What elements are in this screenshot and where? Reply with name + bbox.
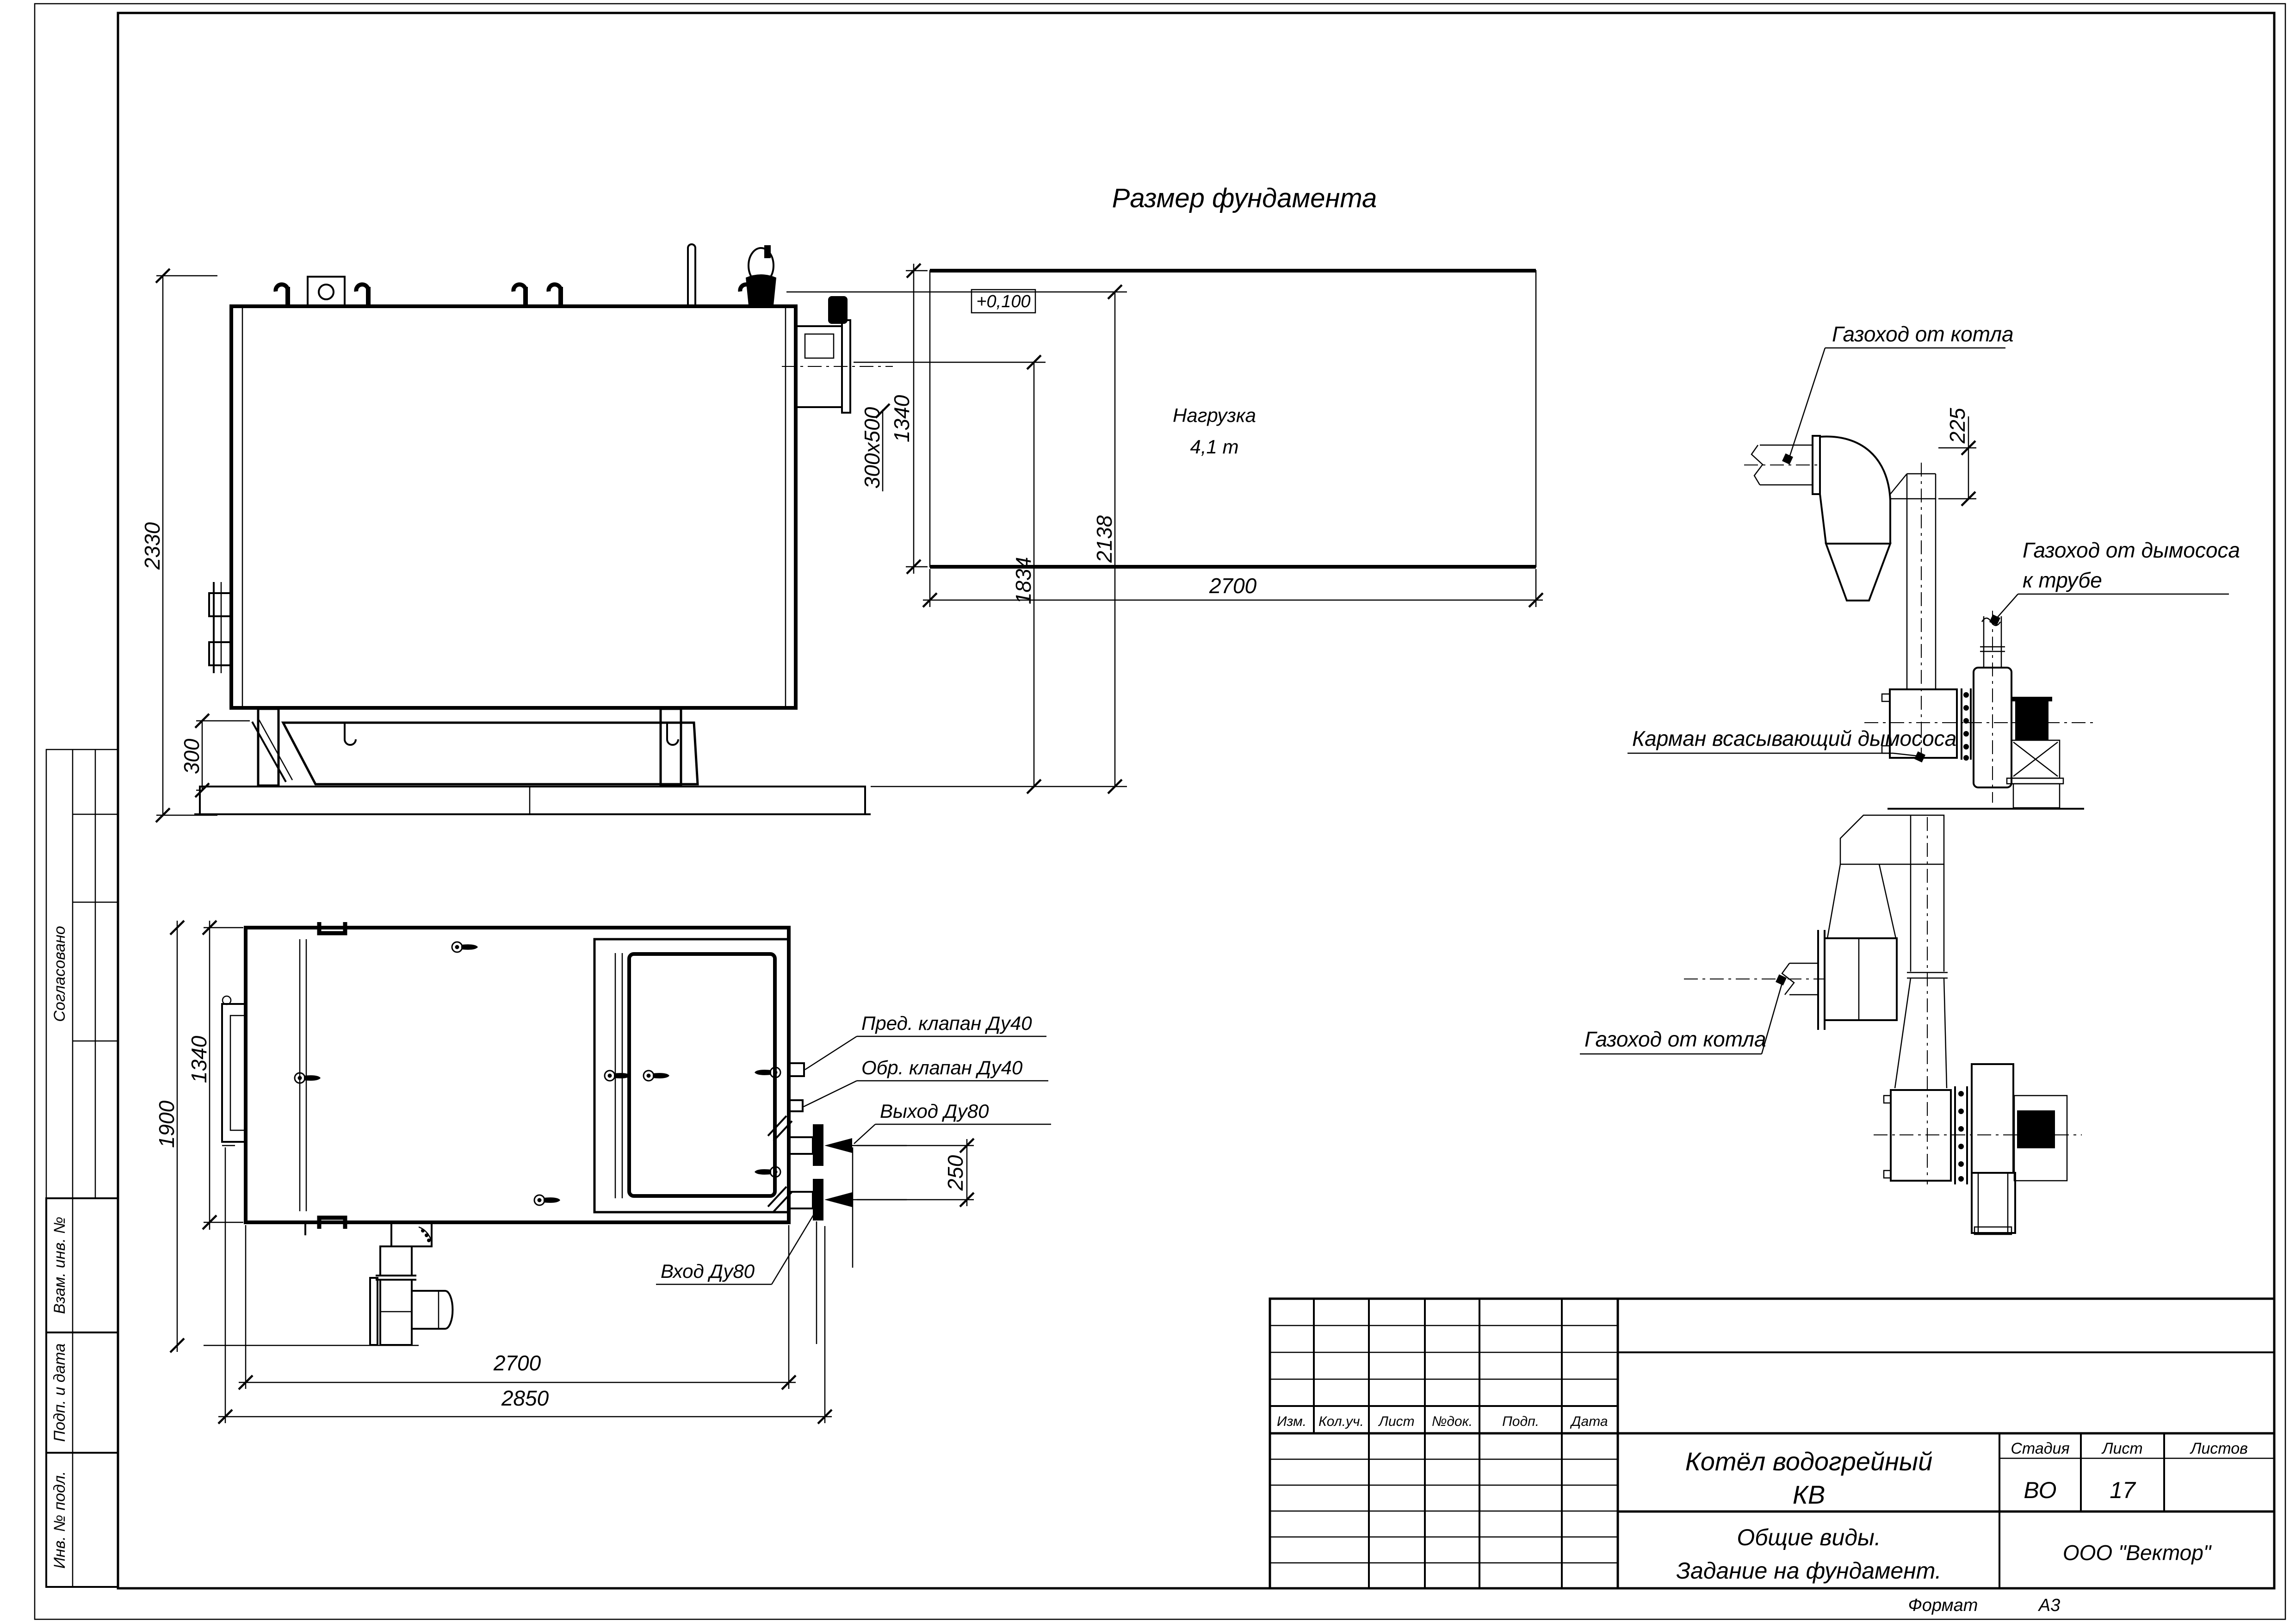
tb-sheet-label: Лист [2101,1440,2143,1457]
tb-koluch: Кол.уч. [1318,1414,1364,1429]
dim-plan-2700: 2700 [493,1351,541,1375]
drawing-sheet: Согласовано Взам. инв. № Подп. и дата Ин… [0,0,2296,1623]
label-duct-to-stack-2: к трубе [2023,568,2102,592]
duct-plan-view: Газоход от котла [1580,815,2082,1234]
label-duct-from-boiler: Газоход от котла [1832,322,2014,346]
dim-300x500: 300х500 [860,407,884,489]
sheet-footer: Формат А3 [1908,1596,2061,1615]
label-safety-valve: Пред. клапан Ду40 [861,1012,1032,1034]
format-label: Формат [1908,1596,1978,1615]
dim-250: 250 [943,1155,967,1191]
dim-2330: 2330 [140,522,164,570]
stamp-inv-orig-label: Инв. № подл. [51,1471,68,1569]
tb-sheets-label: Листов [2190,1440,2248,1457]
label-duct-plan-from-boiler: Газоход от котла [1584,1027,1766,1051]
foundation-plan: Размер фундамента +0,100 Нагрузка 4,1 т … [890,183,1543,607]
tb-stage-value: ВО [2024,1477,2056,1503]
label-outlet: Выход Ду80 [880,1100,989,1122]
foundation-load-1: Нагрузка [1173,404,1256,426]
boiler-side-view: 2330 300 300х500 1834 2138 [140,244,1127,855]
dim-1834: 1834 [1011,557,1035,604]
tb-data: Дата [1570,1414,1608,1429]
tb-podp: Подп. [1502,1414,1539,1429]
tb-doc-title-2: КВ [1793,1480,1825,1509]
stamp-replace-inv-label: Взам. инв. № [51,1217,68,1314]
boiler-plan-view: 250 Пред. клапан Ду40 Обр. клапан Ду40 В… [155,921,1051,1424]
foundation-title: Размер фундамента [1112,183,1377,213]
dim-plan-1340: 1340 [187,1035,211,1083]
tb-ndok: №док. [1432,1414,1473,1429]
dim-plan-2850: 2850 [501,1386,549,1410]
dim-2138: 2138 [1092,515,1116,563]
tb-list: Лист [1378,1414,1414,1429]
format-value: А3 [2038,1596,2060,1615]
tb-subtitle-2: Задание на фундамент. [1676,1558,1941,1584]
tb-stage-label: Стадия [2011,1440,2069,1457]
dim-plan-1900: 1900 [155,1100,179,1148]
label-check-valve: Обр. клапан Ду40 [861,1057,1023,1078]
tb-subtitle-1: Общие виды. [1737,1524,1881,1550]
boiler-plan-outline [246,928,789,1222]
title-block: Изм. Кол.уч. Лист №док. Подп. Дата Котёл… [1270,1299,2274,1588]
label-duct-to-stack-1: Газоход от дымососа [2023,538,2240,562]
tb-doc-title-1: Котёл водогрейный [1685,1447,1933,1476]
dim-foundation-2700: 2700 [1209,574,1257,598]
foundation-level-mark: +0,100 [976,292,1030,311]
foundation-load-2: 4,1 т [1190,436,1238,458]
label-pocket: Карман всасывающий дымососа [1632,726,1956,750]
stamp-sign-date-label: Подп. и дата [51,1344,68,1442]
stamp-approved-label: Согласовано [51,926,68,1022]
label-inlet: Вход Ду80 [661,1260,755,1282]
dim-300: 300 [179,738,204,774]
left-stamp: Согласовано Взам. инв. № Подп. и дата Ин… [46,750,118,1587]
duct-side-view: Газоход от котла 225 [1628,322,2240,830]
tb-izm: Изм. [1277,1414,1306,1429]
dim-foundation-1340: 1340 [890,395,914,442]
boiler-body-outline [231,306,796,708]
dim-225: 225 [1945,408,1969,444]
tb-company: ООО "Вектор" [2063,1541,2212,1565]
tb-sheet-value: 17 [2110,1477,2136,1503]
